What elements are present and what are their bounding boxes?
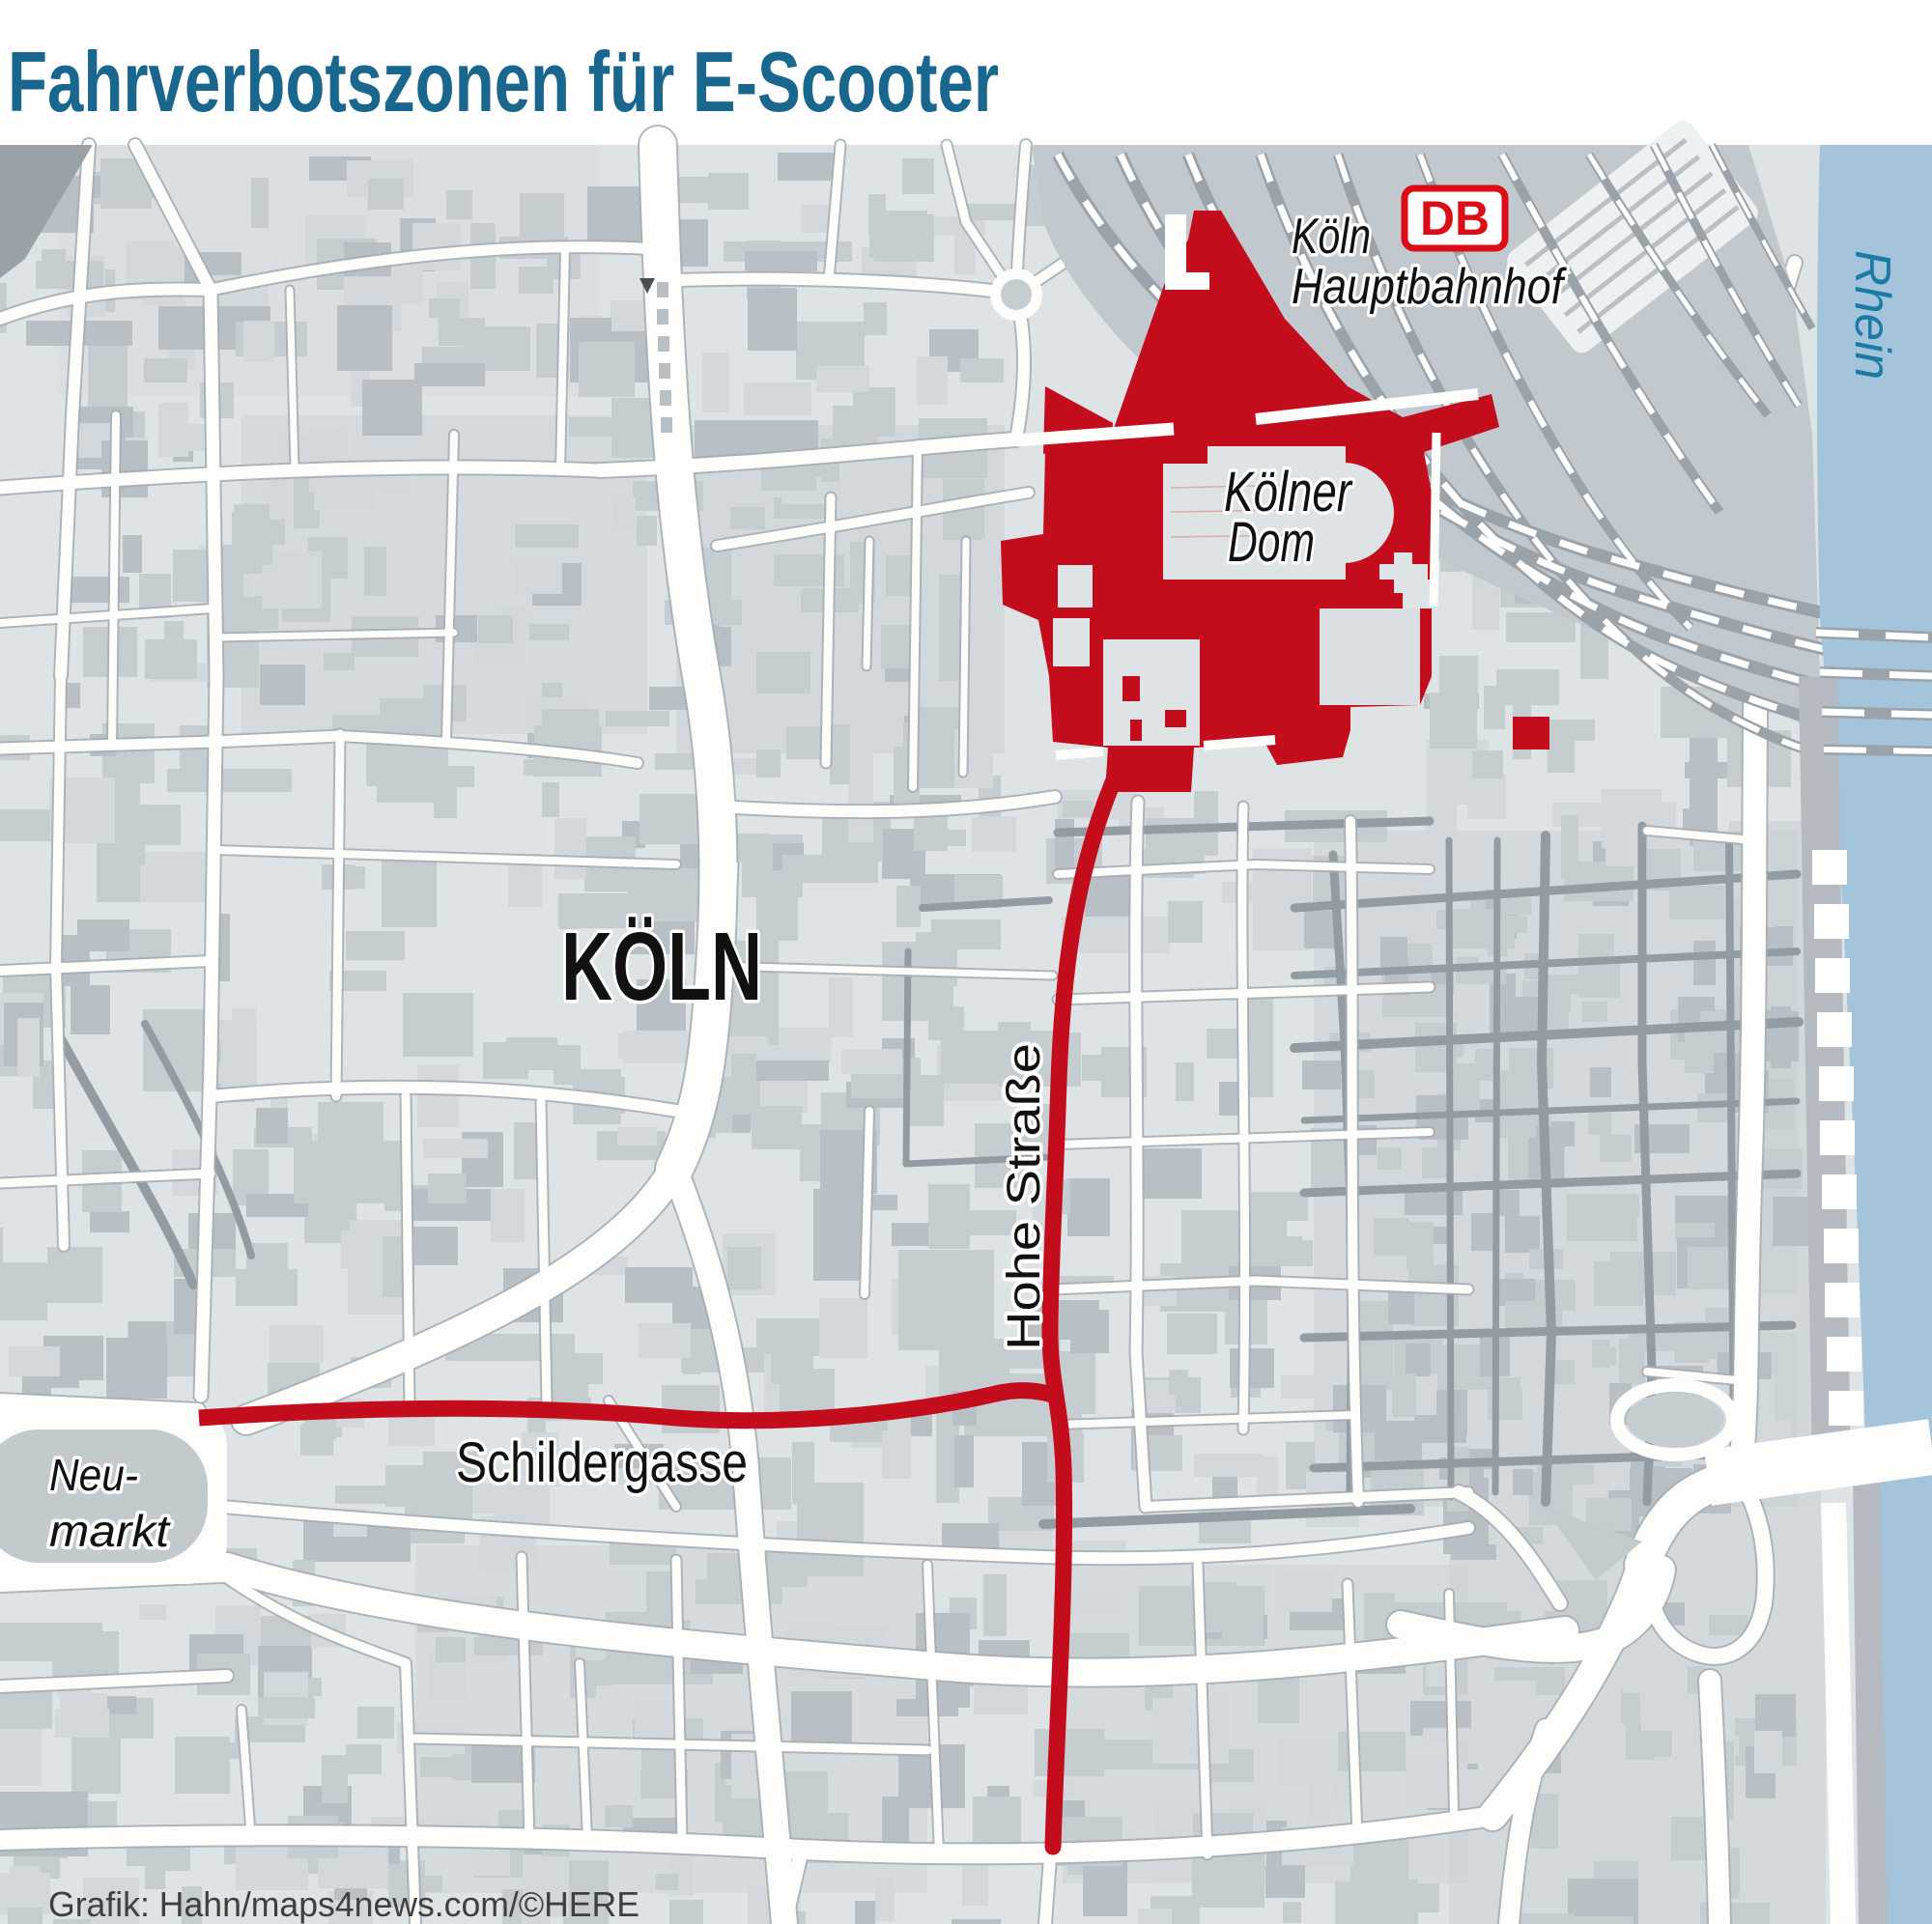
svg-text:Köln: Köln <box>1292 209 1371 265</box>
svg-text:Hohe Straße: Hohe Straße <box>999 1043 1050 1350</box>
svg-text:markt: markt <box>49 1506 171 1556</box>
svg-text:Fahrverbotszonen für E-Scooter: Fahrverbotszonen für E-Scooter <box>8 34 999 129</box>
svg-text:Hauptbahnhof: Hauptbahnhof <box>1292 259 1567 315</box>
svg-text:Schildergasse: Schildergasse <box>456 1431 748 1494</box>
svg-text:KÖLN: KÖLN <box>561 913 762 1021</box>
svg-text:Grafik: Hahn/maps4news.com/©HE: Grafik: Hahn/maps4news.com/©HERE <box>48 1884 639 1924</box>
svg-text:Rhein: Rhein <box>1844 250 1900 380</box>
svg-text:DB: DB <box>1420 191 1490 245</box>
svg-text:Neu-: Neu- <box>49 1450 138 1500</box>
svg-text:Dom: Dom <box>1228 511 1315 574</box>
